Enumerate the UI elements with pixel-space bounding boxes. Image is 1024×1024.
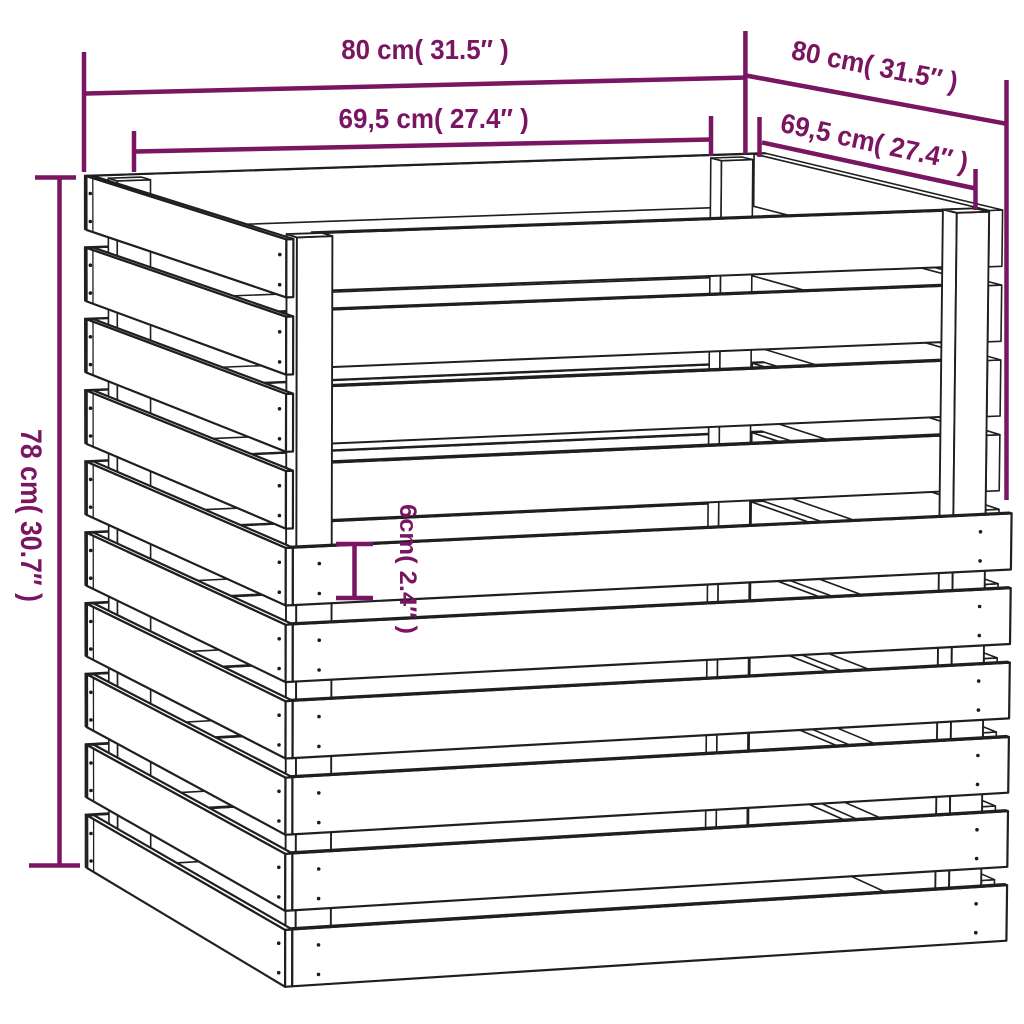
svg-text:69,5 cm( 27.4″ ): 69,5 cm( 27.4″ ) [339,103,529,134]
svg-text:78 cm( 30.7″ ): 78 cm( 30.7″ ) [14,429,47,602]
svg-text:80 cm( 31.5″ ): 80 cm( 31.5″ ) [341,34,509,65]
svg-text:6cm( 2.4″ ): 6cm( 2.4″ ) [394,504,421,634]
